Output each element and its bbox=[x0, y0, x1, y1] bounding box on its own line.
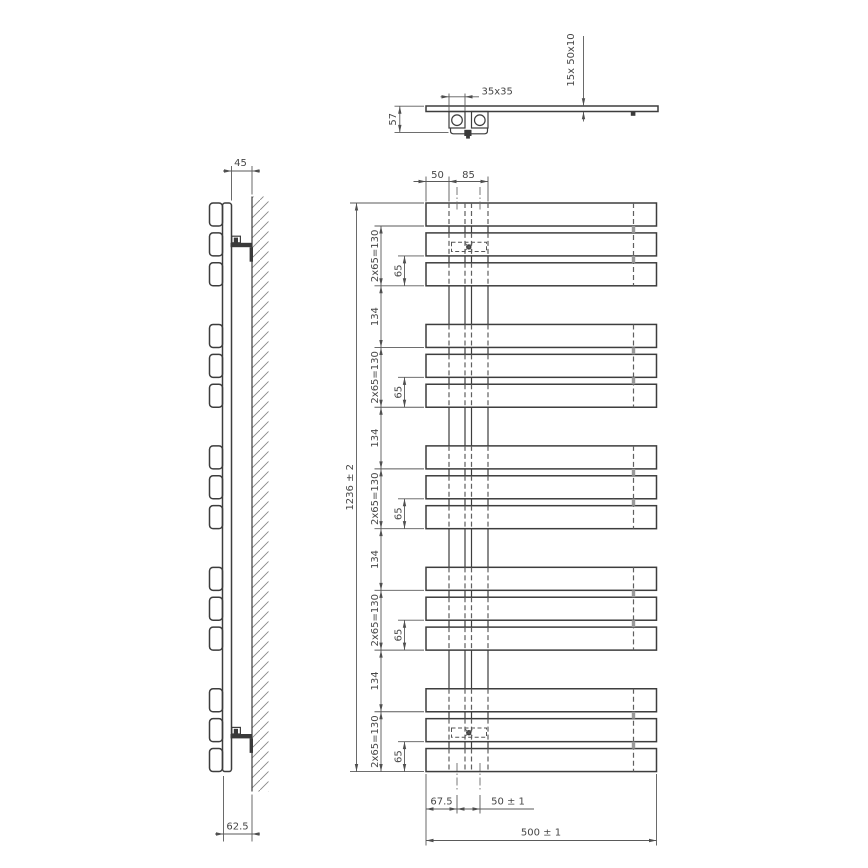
dim-label: 65 bbox=[394, 386, 405, 399]
dim-arrow bbox=[379, 529, 382, 537]
radiator-panel-top bbox=[426, 106, 658, 112]
dim-arrow bbox=[457, 807, 465, 810]
dim-label: 500 ± 1 bbox=[521, 828, 561, 839]
dim-arrow bbox=[582, 112, 585, 120]
dim-arrow bbox=[481, 180, 489, 183]
tube-profile bbox=[210, 203, 223, 226]
dim-arrow bbox=[403, 400, 406, 408]
dim-arrow bbox=[449, 180, 457, 183]
tube-profile bbox=[210, 627, 223, 650]
tube-front bbox=[426, 689, 657, 712]
dim-arrow bbox=[450, 807, 458, 810]
tube-profile bbox=[210, 476, 223, 499]
dim-label: 62.5 bbox=[226, 822, 248, 833]
dim-label: 65 bbox=[394, 629, 405, 642]
dim-arrow bbox=[442, 95, 450, 98]
dim-arrow bbox=[252, 832, 260, 835]
technical-drawing: 5735x3515x 50x104562.550851236 ± 22x65=1… bbox=[0, 0, 868, 868]
dim-fitting-35x35: 35x35 bbox=[441, 87, 513, 111]
tube-front bbox=[426, 384, 657, 407]
dim-label: 45 bbox=[234, 158, 247, 169]
tube-profile bbox=[210, 506, 223, 529]
wall-bracket bbox=[231, 236, 254, 262]
dim-arrow bbox=[403, 499, 406, 507]
bracket-plate bbox=[231, 734, 253, 738]
tube-front bbox=[426, 203, 657, 226]
tube-front bbox=[426, 506, 657, 529]
dim-label: 2x65=130 bbox=[370, 715, 381, 767]
dim-wall-clearance-45: 45 bbox=[223, 158, 260, 200]
dim-arrow bbox=[403, 643, 406, 651]
tube-profile bbox=[210, 354, 223, 377]
dim-label: 134 bbox=[370, 429, 381, 448]
bracket-plate bbox=[231, 243, 253, 247]
top-view: 5735x3515x 50x10 bbox=[388, 33, 658, 138]
dim-label: 57 bbox=[388, 113, 399, 126]
dim-arrow bbox=[252, 169, 260, 172]
dim-arrow bbox=[403, 521, 406, 529]
dim-arrow bbox=[403, 620, 406, 628]
dim-arrow bbox=[403, 742, 406, 750]
tube-front bbox=[426, 446, 657, 469]
dim-arrow bbox=[379, 583, 382, 591]
dim-arrow bbox=[403, 764, 406, 772]
tube-front bbox=[426, 354, 657, 377]
tube-profile bbox=[210, 567, 223, 590]
bracket-flange bbox=[250, 738, 253, 753]
dim-label: 15x 50x10 bbox=[566, 33, 577, 86]
tube-profile bbox=[210, 384, 223, 407]
dim-arrow bbox=[355, 764, 358, 772]
dim-label: 2x65=130 bbox=[370, 594, 381, 646]
dim-arrow bbox=[419, 180, 427, 183]
wall-bracket bbox=[231, 727, 254, 753]
dim-arrow bbox=[426, 807, 434, 810]
wall-hatch bbox=[252, 197, 269, 792]
dim-bottom: 67.550 ± 1500 ± 1 bbox=[426, 774, 657, 846]
dim-arrow bbox=[403, 256, 406, 264]
tube-profile bbox=[210, 597, 223, 620]
tube-profile bbox=[210, 689, 223, 712]
connection-port-right bbox=[475, 115, 486, 126]
dim-label: 2x65=130 bbox=[370, 473, 381, 525]
dim-tube-pitch-65: 6565656565 bbox=[394, 256, 425, 772]
tube-front bbox=[426, 749, 657, 772]
dim-arrow bbox=[398, 106, 401, 114]
dim-label: 134 bbox=[370, 550, 381, 569]
dim-arrow bbox=[403, 278, 406, 286]
tube-front bbox=[426, 719, 657, 742]
dim-label: 65 bbox=[394, 750, 405, 763]
dim-tube-spec: 15x 50x10 bbox=[566, 33, 585, 121]
dim-label: 50 ± 1 bbox=[491, 797, 525, 808]
dim-label: 35x35 bbox=[482, 87, 513, 98]
dim-arrow bbox=[473, 807, 481, 810]
drawing-sheet: 5735x3515x 50x104562.550851236 ± 22x65=1… bbox=[0, 0, 868, 868]
dim-arrow bbox=[355, 203, 358, 211]
dim-arrow bbox=[426, 839, 434, 842]
dim-arrow bbox=[465, 95, 473, 98]
tube-front bbox=[426, 233, 657, 256]
dim-arrow bbox=[379, 704, 382, 712]
tube-profile bbox=[210, 233, 223, 256]
tube-front bbox=[426, 263, 657, 286]
mounting-bracket-hidden bbox=[452, 728, 487, 737]
dim-label: 50 bbox=[431, 170, 444, 181]
tube-front bbox=[426, 324, 657, 347]
front-view: 50851236 ± 22x65=1301342x65=1301342x65=1… bbox=[345, 170, 657, 846]
tube-front bbox=[426, 627, 657, 650]
dim-label: 65 bbox=[394, 507, 405, 520]
tube-profile bbox=[210, 324, 223, 347]
dim-arrow bbox=[379, 461, 382, 469]
dim-arrow bbox=[379, 286, 382, 294]
tube-profile bbox=[210, 263, 223, 286]
bracket-flange bbox=[250, 247, 253, 262]
tube-profile bbox=[210, 446, 223, 469]
tube-profile bbox=[210, 749, 223, 772]
dim-arrow bbox=[649, 839, 657, 842]
dim-arrow bbox=[403, 377, 406, 385]
tube-profile bbox=[210, 719, 223, 742]
dim-label: 134 bbox=[370, 307, 381, 326]
connection-port-left bbox=[452, 115, 463, 126]
dim-label: 2x65=130 bbox=[370, 351, 381, 403]
dim-label: 65 bbox=[394, 264, 405, 277]
tube-front bbox=[426, 476, 657, 499]
side-view: 4562.5 bbox=[210, 158, 269, 841]
dim-arrow bbox=[379, 340, 382, 348]
dim-label: 1236 ± 2 bbox=[345, 464, 356, 511]
bracket-screw bbox=[234, 729, 238, 734]
clip-screw-tip bbox=[466, 136, 470, 139]
dim-depth-57: 57 bbox=[388, 106, 449, 132]
clip-screw bbox=[464, 130, 471, 136]
dim-arrow bbox=[224, 169, 232, 172]
dim-label: 2x65=130 bbox=[370, 230, 381, 282]
dim-arrow bbox=[216, 832, 224, 835]
support-strip-end bbox=[631, 112, 636, 116]
collector-panel-side bbox=[223, 203, 232, 772]
dim-label: 134 bbox=[370, 671, 381, 690]
dim-arrow bbox=[379, 407, 382, 415]
bracket-screw bbox=[234, 238, 238, 243]
dim-arrow bbox=[582, 98, 585, 106]
tube-front bbox=[426, 567, 657, 590]
dim-overall-height: 1236 ± 2 bbox=[345, 203, 424, 772]
dim-arrow bbox=[379, 650, 382, 658]
dim-label: 85 bbox=[462, 170, 475, 181]
tube-front bbox=[426, 597, 657, 620]
dim-label: 67.5 bbox=[430, 797, 452, 808]
mounting-bracket-hidden bbox=[452, 242, 487, 251]
dim-top-50-85: 5085 bbox=[414, 170, 489, 202]
